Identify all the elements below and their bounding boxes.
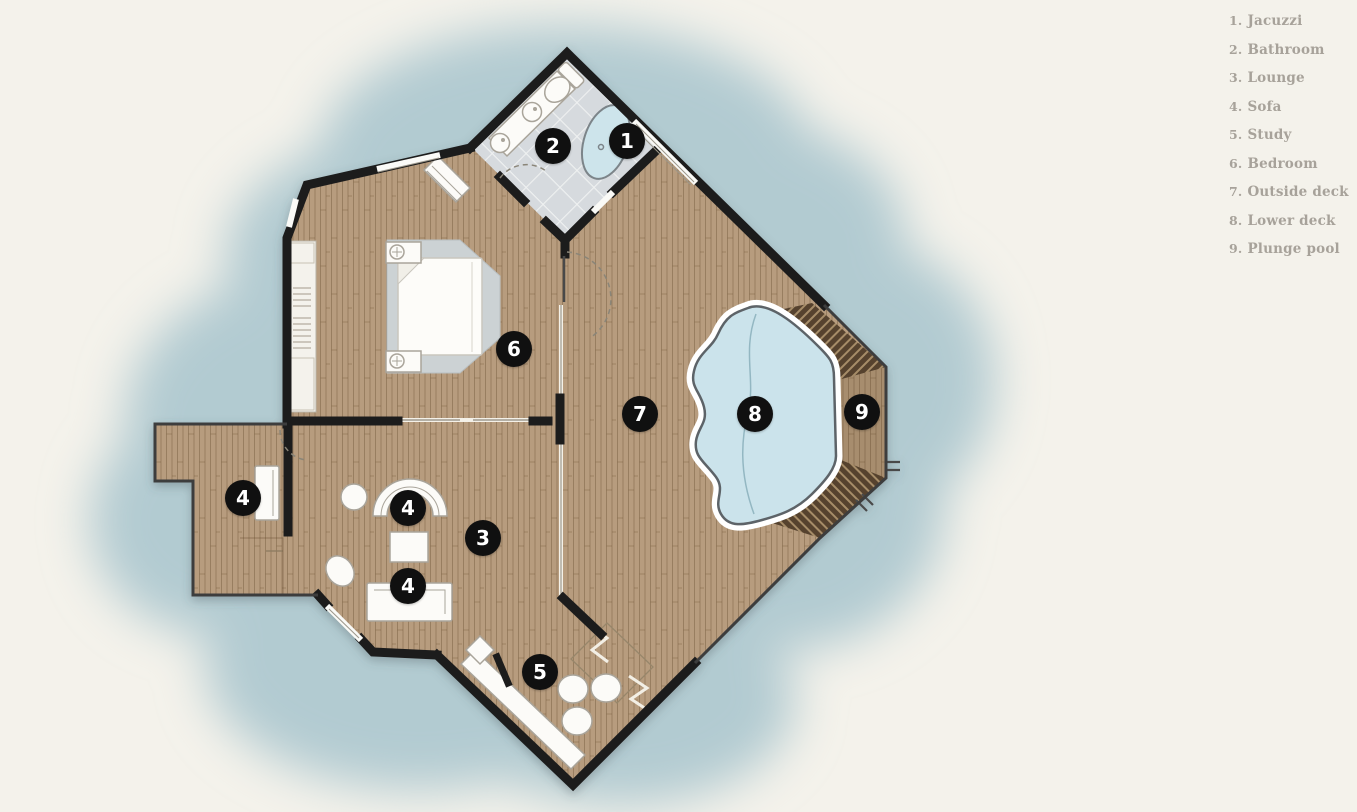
pouf	[562, 707, 592, 735]
legend-label: Lower deck	[1247, 213, 1335, 229]
room-marker-lower-deck[interactable]: 8	[737, 396, 773, 432]
legend-number: 3.	[1229, 70, 1242, 85]
room-marker-outside-deck[interactable]: 7	[622, 396, 658, 432]
legend-number: 1.	[1229, 13, 1242, 28]
legend-label: Bathroom	[1247, 42, 1324, 58]
nightstand	[386, 351, 421, 372]
coffee-table	[390, 532, 428, 562]
floor-plan: 1 2 3 4 4 4 5 6 7 8 9	[0, 0, 1357, 812]
room-marker-sofa-curved[interactable]: 4	[390, 490, 426, 526]
legend-label: Bedroom	[1247, 156, 1317, 172]
legend-item-sofa: 4.Sofa	[1229, 93, 1349, 122]
legend-item-outside-deck: 7.Outside deck	[1229, 178, 1349, 207]
room-marker-bedroom[interactable]: 6	[496, 331, 532, 367]
legend: 1.Jacuzzi 2.Bathroom 3.Lounge 4.Sofa 5.S…	[1229, 7, 1349, 264]
legend-number: 8.	[1229, 213, 1242, 228]
legend-item-bathroom: 2.Bathroom	[1229, 36, 1349, 65]
room-marker-sofa-lounge[interactable]: 4	[390, 568, 426, 604]
room-marker-plunge-pool[interactable]: 9	[844, 394, 880, 430]
legend-item-plunge-pool: 9.Plunge pool	[1229, 235, 1349, 264]
legend-item-study: 5.Study	[1229, 121, 1349, 150]
pouf	[591, 674, 621, 702]
floor-plan-drawing	[0, 0, 1357, 812]
legend-label: Plunge pool	[1247, 241, 1339, 257]
legend-number: 5.	[1229, 127, 1242, 142]
legend-item-bedroom: 6.Bedroom	[1229, 150, 1349, 179]
legend-label: Sofa	[1247, 99, 1281, 115]
legend-number: 2.	[1229, 42, 1242, 57]
room-marker-jacuzzi[interactable]: 1	[609, 123, 645, 159]
legend-label: Study	[1247, 127, 1291, 143]
room-marker-sofa-wing[interactable]: 4	[225, 480, 261, 516]
legend-label: Outside deck	[1247, 184, 1348, 200]
side-table	[341, 484, 367, 510]
room-marker-study[interactable]: 5	[522, 654, 558, 690]
legend-label: Lounge	[1247, 70, 1304, 86]
legend-label: Jacuzzi	[1247, 13, 1302, 29]
legend-number: 9.	[1229, 241, 1242, 256]
room-marker-lounge[interactable]: 3	[465, 520, 501, 556]
legend-number: 4.	[1229, 99, 1242, 114]
legend-item-lounge: 3.Lounge	[1229, 64, 1349, 93]
room-marker-bathroom[interactable]: 2	[535, 128, 571, 164]
legend-number: 7.	[1229, 184, 1242, 199]
legend-number: 6.	[1229, 156, 1242, 171]
wardrobe	[289, 241, 316, 412]
pouf	[558, 675, 588, 703]
legend-item-lower-deck: 8.Lower deck	[1229, 207, 1349, 236]
legend-item-jacuzzi: 1.Jacuzzi	[1229, 7, 1349, 36]
nightstand	[386, 242, 421, 263]
